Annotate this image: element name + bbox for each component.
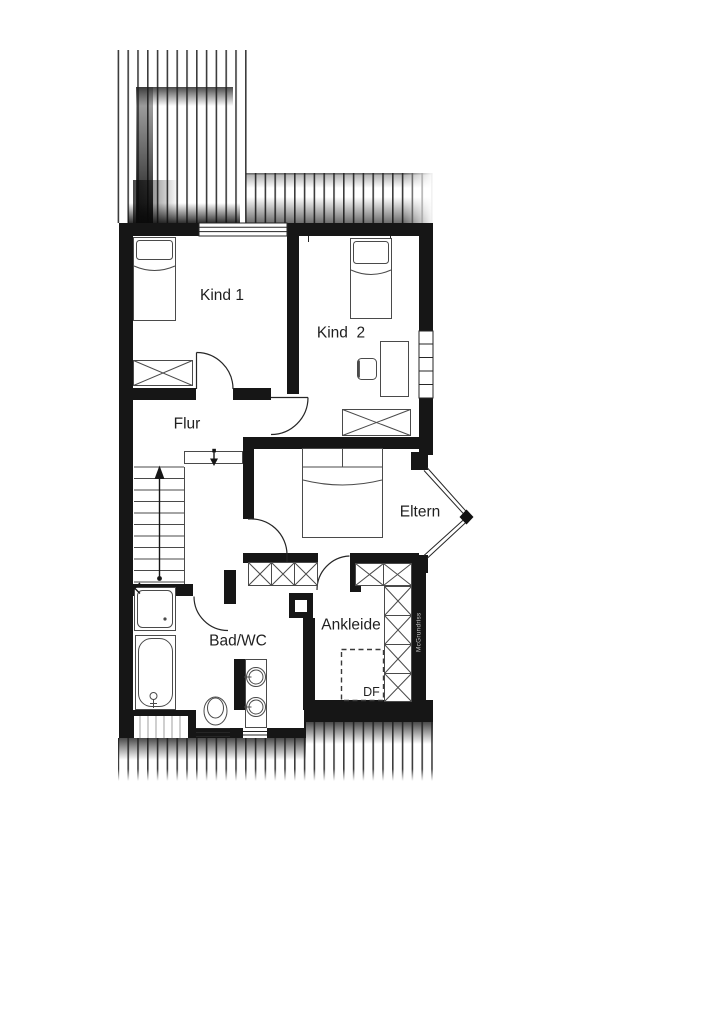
door-ankleide: [317, 556, 350, 590]
label-eltern: Eltern: [400, 504, 441, 521]
eltern-double-bed: [303, 449, 383, 538]
label-flur: Flur: [174, 416, 201, 433]
door-kind1: [197, 353, 234, 390]
wall-eltern-south-east: [361, 553, 419, 563]
stair-landing: [185, 449, 243, 466]
left-wall: [119, 223, 133, 738]
eltern-wardrobe-row-east: [356, 564, 412, 586]
wall-bad-ankleide: [303, 618, 315, 712]
floor-plan-canvas: Kind 1 Kind 2 Flur Eltern Bad/WC Ankleid…: [0, 0, 724, 1024]
kind1-wardrobe: [134, 361, 193, 386]
window-top: [199, 223, 287, 236]
kind2-bed: [351, 239, 392, 319]
toilet: [204, 697, 227, 725]
stairs-up-arrow-icon: [155, 466, 165, 581]
label-roof-window-df: DF: [363, 685, 380, 699]
wall-eltern-west: [243, 437, 254, 519]
bay-stub-top: [411, 452, 428, 470]
label-kind1: Kind 1: [200, 287, 244, 304]
eltern-wardrobe-row-west: [249, 563, 318, 586]
label-ankleide: Ankleide: [321, 617, 380, 634]
label-badwc: Bad/WC: [209, 633, 267, 650]
kind2-chair: [358, 359, 377, 380]
roof-hatch-top-right: [246, 172, 434, 223]
kind2-desk: [381, 342, 409, 397]
wall-eltern-south-west: [243, 553, 318, 563]
roof-hatch-top-left: [116, 50, 248, 223]
door-bad: [194, 597, 228, 631]
wall-kind1-south-east: [233, 388, 271, 400]
wall-kind1-south-west: [119, 388, 196, 400]
wall-eltern-north: [243, 437, 419, 449]
kind2-wardrobe: [343, 410, 411, 436]
kind1-bed: [134, 238, 176, 321]
right-wall-upper: [419, 236, 433, 331]
label-kind2: Kind 2: [317, 325, 365, 342]
watermark-text: McGrundriss: [416, 612, 423, 652]
bathtub: [136, 636, 176, 710]
staircase: [134, 449, 243, 584]
window-right-kind2: [419, 331, 433, 398]
floor-plan-page: Kind 1 Kind 2 Flur Eltern Bad/WC Ankleid…: [0, 0, 724, 1024]
right-wall-mid: [419, 398, 433, 455]
shower: [130, 583, 176, 631]
south-wall-east: [306, 700, 433, 722]
duct-inner: [295, 600, 307, 612]
bad-furniture: [130, 583, 267, 728]
wall-kind1-kind2: [287, 236, 299, 394]
eltern-furniture: [249, 449, 412, 586]
door-kind2: [271, 398, 308, 435]
window-south-sink: [243, 728, 267, 738]
ankleide-wardrobe-column: [385, 587, 412, 702]
corridor-wall-stub: [224, 570, 236, 604]
kind1-furniture: [134, 238, 193, 386]
double-washbasin: [244, 660, 267, 728]
